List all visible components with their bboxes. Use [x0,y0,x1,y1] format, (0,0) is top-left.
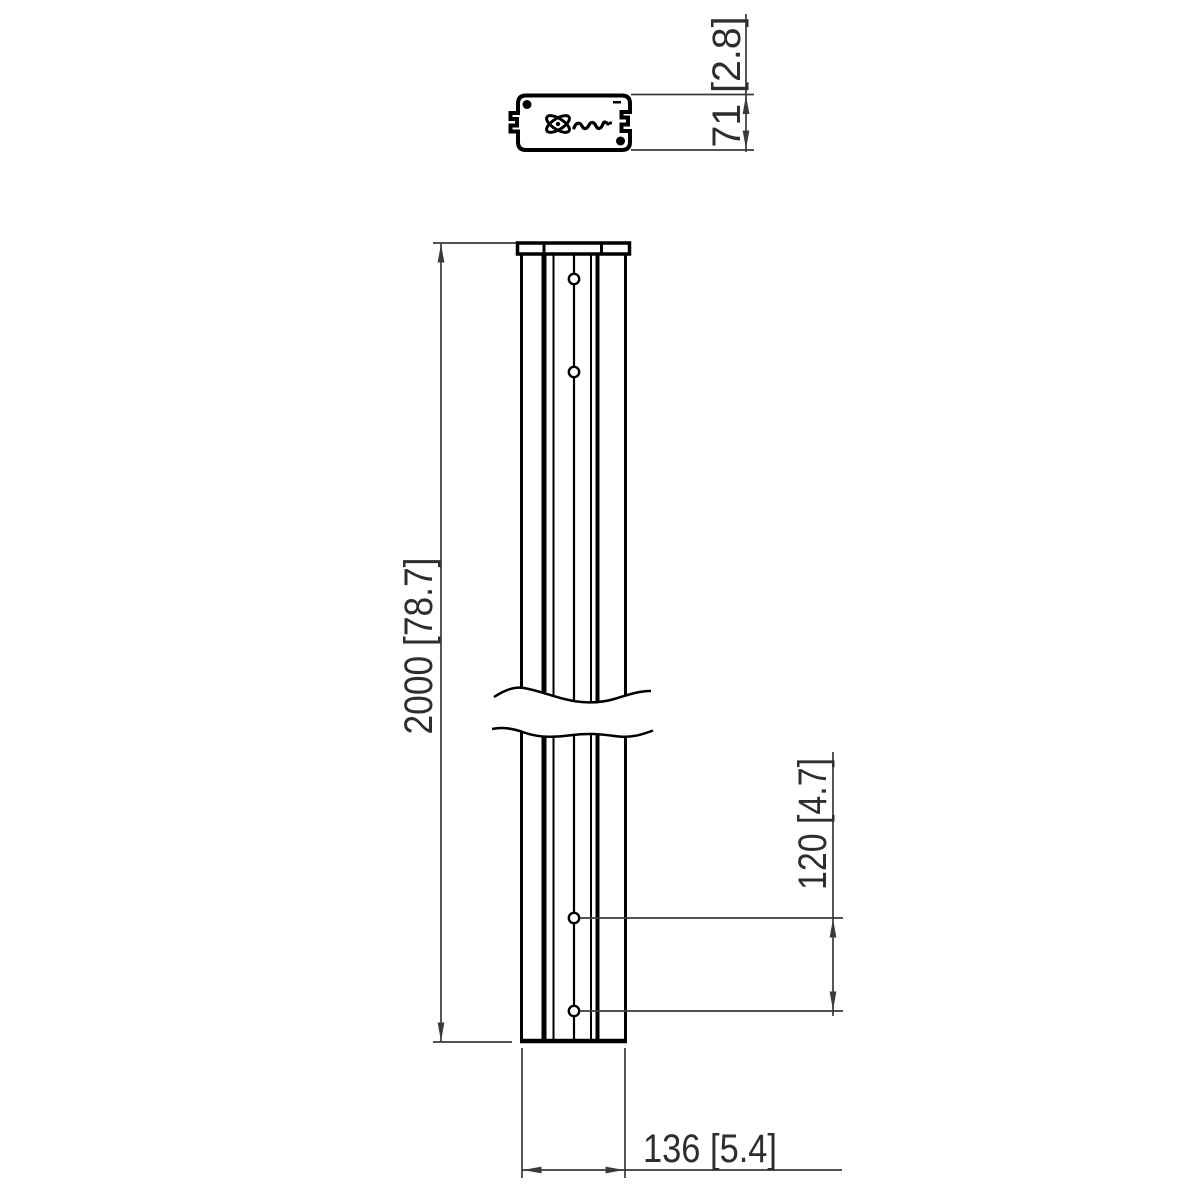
dimension-width: 136 [5.4] [522,1048,842,1178]
dimension-label-width: 136 [5.4] [643,1127,777,1171]
arrow-down [830,992,837,1011]
arrow-up [830,919,837,938]
front-view [492,243,653,1041]
arrow-left [523,1167,542,1174]
logo-center [556,122,560,126]
strip-hole [569,367,579,377]
technical-drawing: 71 [2.8] [0,0,1200,1200]
detail-dash [613,101,621,104]
arrow-down [438,1023,445,1042]
dimension-height: 2000 [78.7] [397,243,516,1042]
strip-hole [569,274,579,284]
dimension-hole-spacing: 120 [4.7] [581,752,844,1016]
logo-trademark-dot [609,121,612,124]
arrow-right [606,1167,625,1174]
dimension-label-depth: 71 [2.8] [705,17,749,148]
break-line-lower [492,728,653,737]
dimension-depth: 71 [2.8] [631,14,754,152]
corner-hole-dot [523,100,532,109]
top-view [511,96,631,151]
dimension-label-height: 2000 [78.7] [397,558,441,735]
top-cap [518,243,630,254]
strip-hole [569,913,579,923]
corner-hole-dot [616,137,625,146]
strip-hole [569,1006,579,1016]
arrow-up [438,244,445,263]
drawing-canvas: 71 [2.8] [0,0,1200,1200]
break-line-upper [494,688,651,703]
dimension-label-hole-spacing: 120 [4.7] [791,758,835,890]
